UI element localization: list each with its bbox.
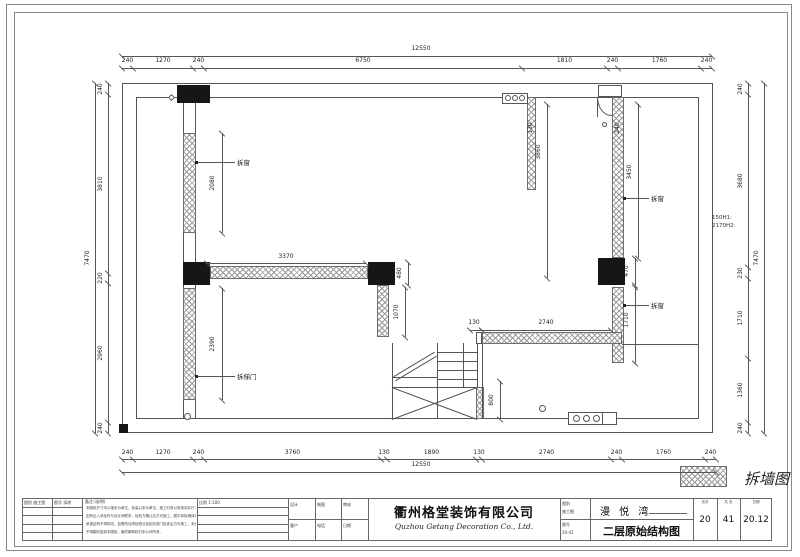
dim-label: 480 bbox=[397, 267, 403, 278]
legend-hatch-swatch bbox=[680, 466, 727, 487]
leader-dot bbox=[195, 375, 198, 378]
dim-line bbox=[196, 376, 235, 377]
fixture-divider bbox=[602, 412, 603, 425]
dim-label: 240 bbox=[607, 58, 618, 64]
tb-side-cell: 图号 bbox=[562, 522, 570, 528]
leader-dot bbox=[195, 161, 198, 164]
stair-tread bbox=[437, 352, 477, 353]
column bbox=[368, 262, 395, 285]
dim-label: 2390 bbox=[210, 336, 216, 351]
dim-label: 240 bbox=[98, 83, 104, 94]
dim-line bbox=[500, 381, 501, 419]
column bbox=[119, 424, 128, 433]
burner-circle bbox=[583, 415, 590, 422]
dim-label: 2740 bbox=[538, 320, 553, 326]
column bbox=[177, 85, 210, 103]
dim-label: 800 bbox=[489, 394, 495, 405]
annotation-demolish-window: 拆窗 bbox=[237, 157, 250, 167]
tb-side-cell: 施工图 bbox=[562, 509, 574, 515]
dim-label: 3680 bbox=[738, 173, 744, 188]
dim-label: 1070 bbox=[394, 304, 400, 319]
dim-line bbox=[122, 68, 712, 69]
stair-tread bbox=[437, 370, 477, 371]
stair-side-line bbox=[437, 343, 438, 419]
tb-cell-scale: 比例 1:100 bbox=[199, 500, 220, 506]
tb-page-header: 共 页 bbox=[717, 500, 740, 505]
dim-line bbox=[222, 133, 223, 233]
dim-label: 2960 bbox=[98, 345, 104, 360]
leader-dot bbox=[623, 197, 626, 200]
drain-circle bbox=[539, 405, 546, 412]
tb-grid-cell: 制图 bbox=[317, 502, 325, 508]
dim-label: 240 bbox=[98, 422, 104, 433]
company-name-en: Quzhou Getang Decoration Co., Ltd. bbox=[368, 522, 560, 531]
column bbox=[183, 262, 210, 285]
dim-label: 230 bbox=[738, 267, 744, 278]
dim-label: 3810 bbox=[98, 176, 104, 191]
dim-label: 12550 bbox=[411, 462, 430, 468]
tb-cell-type: 图别 施工图 bbox=[24, 500, 45, 506]
dim-label: 3450 bbox=[627, 164, 633, 179]
dim-label: 1360 bbox=[738, 382, 744, 397]
legend-label: 拆墙图 bbox=[744, 468, 789, 489]
dim-label: 7470 bbox=[85, 250, 91, 265]
tb-page-value: 20 bbox=[693, 515, 717, 525]
dim-line bbox=[207, 263, 366, 264]
tb-grid-cell: 客户 bbox=[290, 523, 298, 529]
drawing-sheet: 拆墙图 150H1: 2170H2: 图别 施工图 图号 拆除 备注:(说明) … bbox=[0, 0, 800, 557]
dim-label: 240 bbox=[738, 83, 744, 94]
dim-label: 1760 bbox=[652, 58, 667, 64]
dim-label: 240 bbox=[738, 422, 744, 433]
demolish-wall-bottom-right bbox=[482, 332, 622, 344]
dim-label: 3370 bbox=[278, 254, 293, 260]
tb-page-header: 页次 bbox=[693, 500, 717, 505]
tb-side-cell: 20-41 bbox=[562, 530, 574, 536]
dim-label: 12550 bbox=[411, 46, 430, 52]
burner-circle bbox=[573, 415, 580, 422]
tb-notes-line: 不得翻印复制本图纸，最终解释权归本公司所有。 bbox=[86, 529, 196, 536]
door-knob-circle bbox=[602, 122, 607, 127]
tb-page-header: 日期 bbox=[740, 500, 772, 505]
tb-page-value: 20.12 bbox=[740, 515, 772, 525]
demolish-wall-below-column bbox=[377, 285, 389, 337]
dim-line bbox=[196, 162, 235, 163]
dim-label: 220 bbox=[98, 272, 104, 283]
dim-label: 130 bbox=[378, 450, 389, 456]
dim-label: 1710 bbox=[738, 310, 744, 325]
room-partition-line bbox=[482, 344, 483, 419]
height-note: 150H1: 2170H2: bbox=[712, 215, 736, 230]
dim-line bbox=[122, 472, 716, 473]
dim-label: 130 bbox=[468, 320, 479, 326]
burner-circle bbox=[593, 415, 600, 422]
tb-grid-cell: 审核 bbox=[343, 502, 351, 508]
annotation-demolish-window: 拆窗 bbox=[651, 300, 664, 310]
dim-label: 130 bbox=[528, 122, 534, 133]
dim-line bbox=[638, 104, 639, 258]
door-leaf bbox=[597, 97, 598, 117]
dim-line bbox=[624, 198, 649, 199]
dim-label: 1270 bbox=[155, 450, 170, 456]
dim-label: 240 bbox=[193, 450, 204, 456]
dim-line bbox=[748, 83, 749, 433]
dim-label: 2080 bbox=[210, 175, 216, 190]
dim-line bbox=[635, 287, 636, 363]
dim-label: 130 bbox=[473, 450, 484, 456]
annotation-demolish-window: 拆窗 bbox=[651, 193, 664, 203]
dim-line bbox=[122, 56, 712, 57]
dim-label: 1890 bbox=[424, 450, 439, 456]
demolish-wall-mid-horizontal bbox=[210, 266, 368, 279]
dim-line bbox=[108, 83, 109, 433]
dim-label: 1710 bbox=[624, 312, 630, 327]
dim-line bbox=[122, 459, 716, 460]
dim-label: 3760 bbox=[285, 450, 300, 456]
tb-grid-cell: 日期 bbox=[343, 523, 351, 529]
dim-label: 3860 bbox=[536, 144, 542, 159]
dim-line bbox=[95, 83, 96, 433]
demolish-wall-left-upper bbox=[183, 133, 196, 233]
dim-label: 240 bbox=[615, 122, 621, 133]
drawing-title: 二层原始结构图 bbox=[590, 523, 693, 539]
tb-side-cell: 图别 bbox=[562, 501, 570, 507]
dim-label: 6750 bbox=[355, 58, 370, 64]
stair-tread bbox=[437, 379, 477, 380]
stair-landing-line bbox=[392, 387, 477, 388]
dim-label: 240 bbox=[193, 58, 204, 64]
column bbox=[598, 258, 625, 285]
company-name-cn: 衢州格堂装饰有限公司 bbox=[368, 502, 560, 521]
dim-label: 1270 bbox=[155, 58, 170, 64]
dim-line bbox=[547, 104, 548, 278]
tb-notes-line: 如有出入请及时与设计师联系，经双方确认后方可施工。图中拆除墙体均为非承重墙， bbox=[86, 513, 196, 520]
tb-page-value: 41 bbox=[717, 515, 740, 525]
leader-dot bbox=[623, 304, 626, 307]
dim-label: 240 bbox=[611, 450, 622, 456]
room-partition-line bbox=[622, 344, 699, 345]
door-arc bbox=[597, 97, 612, 117]
demolish-wall-top-center bbox=[527, 97, 536, 190]
dim-label: 2740 bbox=[539, 450, 554, 456]
tb-cell-no: 图号 拆除 bbox=[54, 500, 71, 506]
dim-label: 240 bbox=[122, 450, 133, 456]
stair-side-line bbox=[392, 343, 393, 419]
dim-line bbox=[635, 258, 636, 285]
dim-line bbox=[222, 288, 223, 400]
dim-label: 470 bbox=[624, 265, 630, 276]
demolish-wall-right-upper bbox=[612, 97, 624, 258]
door-threshold bbox=[598, 85, 622, 97]
burner-circle bbox=[505, 95, 511, 101]
demolish-wall-left-lower bbox=[183, 288, 196, 400]
dim-line bbox=[405, 287, 406, 337]
drain-circle bbox=[184, 413, 191, 420]
dim-label: 7470 bbox=[754, 250, 760, 265]
stair-side-line bbox=[463, 343, 464, 387]
dim-line bbox=[764, 83, 765, 433]
burner-circle bbox=[512, 95, 518, 101]
dim-label: 240 bbox=[701, 58, 712, 64]
dim-line bbox=[408, 262, 409, 285]
dim-line bbox=[482, 330, 611, 331]
stair-tread bbox=[437, 361, 477, 362]
tb-grid-cell: 设计 bbox=[290, 502, 298, 508]
dim-label: 240 bbox=[705, 450, 716, 456]
dim-label: 1760 bbox=[656, 450, 671, 456]
stair-side-line bbox=[477, 343, 478, 387]
tb-notes-line: 本图纸尺寸均以毫米为单位，标高以米为单位，施工时请以现场实际尺寸为准， bbox=[86, 505, 196, 512]
dim-line bbox=[624, 305, 649, 306]
project-name: 漫 悦 湾 bbox=[600, 503, 651, 518]
dim-label: 1810 bbox=[557, 58, 572, 64]
tb-notes-line: 承重结构不得拆改，如需改动须经物业及相关部门批准后方可施工，未经许可 bbox=[86, 521, 196, 528]
annotation-demolish-stair-door: 拆梯门 bbox=[237, 371, 257, 381]
burner-circle bbox=[519, 95, 525, 101]
tb-grid-cell: 电话 bbox=[317, 523, 325, 529]
